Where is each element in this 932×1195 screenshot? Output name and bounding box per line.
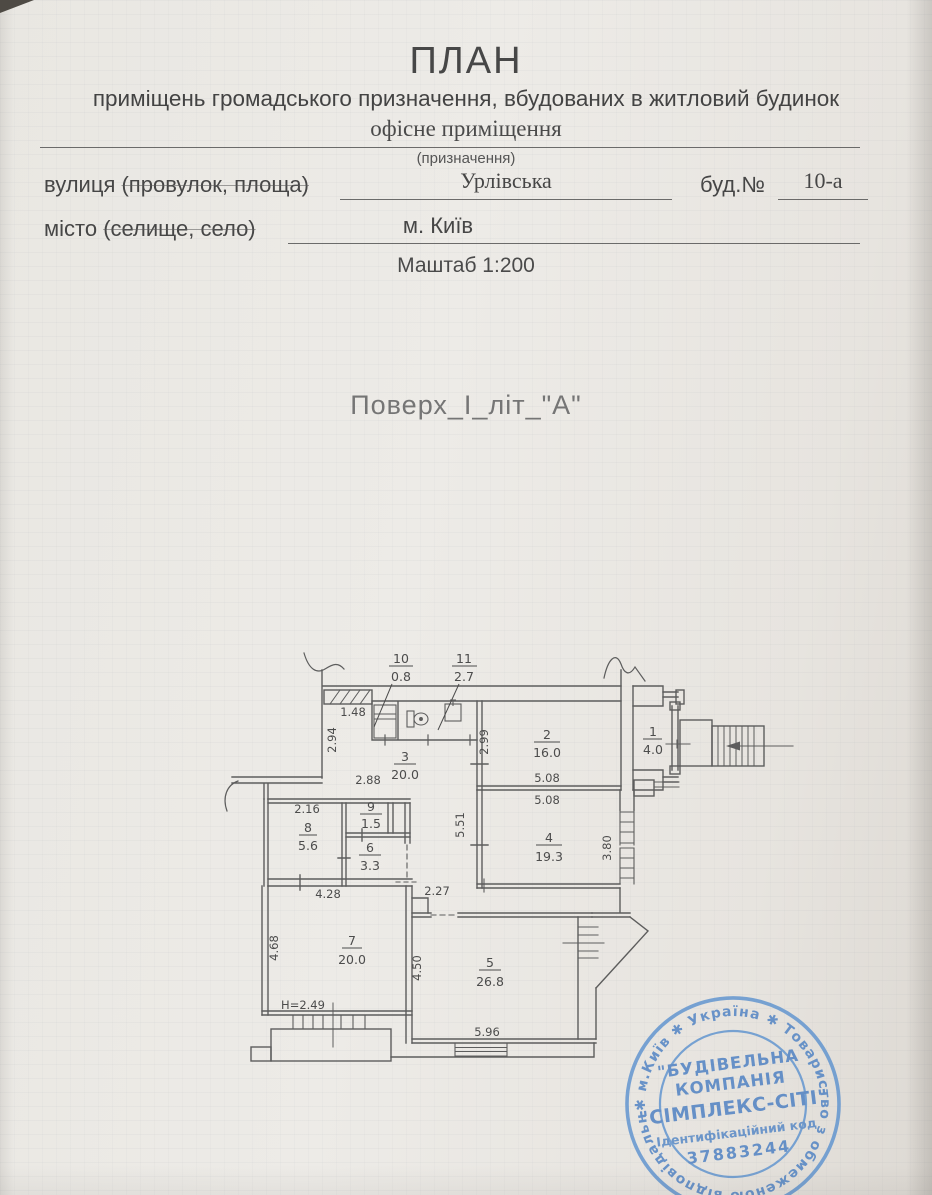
room3-area: 20.0 [391, 767, 419, 782]
dim-2-27: 2.27 [424, 884, 450, 898]
wall-break-left [225, 781, 238, 811]
room11-area: 2.7 [454, 669, 474, 684]
window-room7-right [341, 1015, 365, 1029]
porch-room7 [271, 1029, 391, 1061]
dim-h-2-49: H=2.49 [281, 998, 325, 1012]
room1-area: 4.0 [643, 742, 663, 757]
window-room7-left [293, 1015, 323, 1029]
window-room4-lower [620, 848, 634, 884]
window-room5-bottom [455, 1043, 507, 1056]
wall-break-top-right [604, 658, 645, 681]
room6-area: 3.3 [360, 858, 380, 873]
room8-num: 8 [304, 820, 312, 835]
dim-2-94: 2.94 [325, 727, 339, 753]
room8-area: 5.6 [298, 838, 318, 853]
toilet [407, 711, 428, 727]
room3-num: 3 [401, 749, 409, 764]
dim-4-28: 4.28 [315, 887, 341, 901]
shower-tray [374, 705, 396, 738]
room7-num: 7 [348, 933, 356, 948]
room4-num: 4 [545, 830, 553, 845]
stairs-direction-arrow [726, 742, 740, 751]
dim-5-08-a: 5.08 [534, 771, 560, 785]
room9-num: 9 [367, 799, 375, 814]
dim-2-88: 2.88 [355, 773, 381, 787]
room2-area: 16.0 [533, 745, 561, 760]
company-stamp: ✱ м.Київ ✱ Україна ✱ Товариство з обмеже… [0, 0, 851, 1195]
room5-num: 5 [486, 955, 494, 970]
scanned-plan-document: ПЛАН приміщень громадського призначення,… [0, 0, 932, 1195]
bathroom-fixtures [374, 700, 461, 738]
room2-num: 2 [543, 727, 551, 742]
dim-2-16: 2.16 [294, 802, 320, 816]
window-room5-right [563, 927, 604, 958]
room10-num: 10 [393, 651, 409, 666]
room7-area: 20.0 [338, 952, 366, 967]
entry-porch [680, 720, 712, 766]
bay-diagonal-wall [596, 917, 648, 988]
floor-plan-drawing: 10 0.8 11 2.7 2 16.0 1 4.0 3 20.0 4 19.3… [0, 0, 932, 1195]
dim-4-50: 4.50 [410, 955, 424, 981]
dim-5-08-b: 5.08 [534, 793, 560, 807]
dim-4-68: 4.68 [267, 935, 281, 961]
room11-num: 11 [456, 651, 472, 666]
dim-3-80: 3.80 [600, 835, 614, 861]
window-room4-upper [620, 810, 634, 845]
dim-5-96: 5.96 [474, 1025, 500, 1039]
stamp-ring-text: ✱ м.Київ ✱ Україна ✱ Товариство з обмеже… [0, 0, 845, 1195]
room6-num: 6 [366, 840, 374, 855]
room1-num: 1 [649, 724, 657, 739]
wall-break-top-left [304, 653, 344, 671]
room4-area: 19.3 [535, 849, 563, 864]
dim-5-51: 5.51 [453, 812, 467, 838]
room10-area: 0.8 [391, 669, 411, 684]
room9-area: 1.5 [361, 816, 381, 831]
dim-2-99: 2.99 [477, 729, 491, 755]
dimension-labels: 1.48 2.94 2.88 2.99 5.08 5.08 5.51 3.80 … [267, 705, 614, 1039]
dim-1-48: 1.48 [340, 705, 366, 719]
room5-area: 26.8 [476, 974, 504, 989]
